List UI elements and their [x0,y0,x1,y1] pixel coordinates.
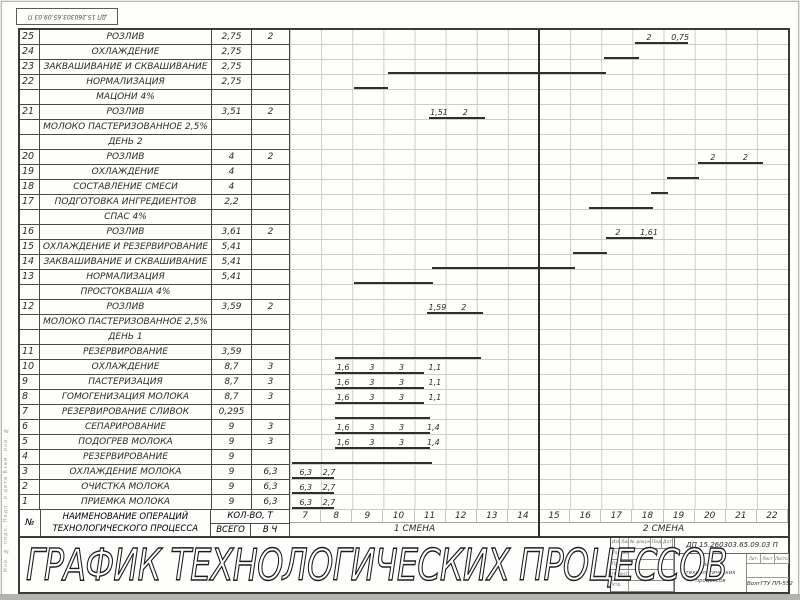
qty-value: 5,41 [212,240,252,255]
rate-value [252,120,290,135]
hour-tick: 19 [664,510,695,522]
bar-label: 1,6 [337,364,350,372]
row-number: 24 [20,45,40,60]
rate-value: 3 [252,375,290,390]
operation-name: СОСТАВЛЕНИЕ СМЕСИ [40,180,212,195]
bar-label: 3 [369,379,374,387]
qty-value: 4 [212,165,252,180]
gantt-bar [573,252,607,254]
row-number: 15 [20,240,40,255]
operation-name: ПАСТЕРИЗАЦИЯ [40,375,212,390]
qty-value: 9 [212,420,252,435]
table-row: СПАС 4% [20,210,788,225]
hour-tick: 11 [415,510,446,522]
qty-value: 5,41 [212,255,252,270]
row-number: 23 [20,60,40,75]
table-row: 3ОХЛАЖДЕНИЕ МОЛОКА96,36,32,7 [20,465,788,480]
rate-value [252,90,290,105]
row-number: 21 [20,105,40,120]
qty-value: 2,75 [212,75,252,90]
table-row: 8ГОМОГЕНИЗАЦИЯ МОЛОКА8,731,6331,1 [20,390,788,405]
table-row: 10ОХЛАЖДЕНИЕ8,731,6331,1 [20,360,788,375]
bar-label: 1,6 [337,379,350,387]
operation-name: ДЕНЬ 1 [40,330,212,345]
qty-value: 2,75 [212,30,252,45]
table-row: 25РОЗЛИВ2,75220,75 [20,30,788,45]
bar-label: 3 [399,394,404,402]
table-row: 14ЗАКВАШИВАНИЕ И СКВАШИВАНИЕ5,41 [20,255,788,270]
bar-label: 2,7 [323,469,336,477]
gantt-bar [354,282,433,284]
operation-name: РЕЗЕРВИРОВАНИЕ [40,345,212,360]
table-row: 1ПРИЕМКА МОЛОКА96,36,32,7 [20,495,788,510]
gantt-bar [292,492,334,494]
organization: ВолгГТУ ПП-552 [747,578,789,592]
operation-name: ОХЛАЖДЕНИЕ [40,360,212,375]
table-row: 2ОЧИСТКА МОЛОКА96,36,32,7 [20,480,788,495]
row-number [20,135,40,150]
operation-name: РОЗЛИВ [40,300,212,315]
qty-value: 9 [212,435,252,450]
bottom-zone: ГРАФИК ТЕХНОЛОГИЧЕСКИХ ПРОЦЕССОВ Изм.Лис… [20,538,788,592]
row-number [20,120,40,135]
row-number: 8 [20,390,40,405]
bar-label: 3 [399,364,404,372]
qty-value: 9 [212,480,252,495]
table-row: 16РОЗЛИВ3,61221,61 [20,225,788,240]
bar-label: 3 [369,394,374,402]
rate-value [252,135,290,150]
operation-name: НОРМАЛИЗАЦИЯ [40,270,212,285]
drawing-title-text: ГРАФИК ТЕХНОЛОГИЧЕСКИХ ПРОЦЕССОВ [26,540,727,591]
bar-label: 0,75 [671,34,689,42]
operation-name: ПОДГОТОВКА ИНГРЕДИЕНТОВ [40,195,212,210]
row-number: 3 [20,465,40,480]
table-row: 4РЕЗЕРВИРОВАНИЕ9 [20,450,788,465]
qty-value: 4 [212,180,252,195]
gantt-bar [651,192,668,194]
qty-value [212,285,252,300]
operation-name: РОЗЛИВ [40,105,212,120]
row-number: 11 [20,345,40,360]
operation-name: МОЛОКО ПАСТЕРИЗОВАННОЕ 2,5% [40,120,212,135]
table-row: ПРОСТОКВАША 4% [20,285,788,300]
qty-value [212,135,252,150]
bar-label: 6,3 [299,469,312,477]
gantt-bar [604,57,638,59]
bar-label: 2 [646,34,651,42]
row-number: 25 [20,30,40,45]
operation-name: ОХЛАЖДЕНИЕ [40,165,212,180]
operation-name: СПАС 4% [40,210,212,225]
gantt-bar [335,372,424,374]
row-number: 14 [20,255,40,270]
row-number: 17 [20,195,40,210]
hour-tick: 17 [601,510,632,522]
gantt-bar [635,42,688,44]
gantt-bar [335,432,430,434]
qty-value: 3,51 [212,105,252,120]
gantt-bar [429,117,485,119]
bar-label: 1,4 [427,439,440,447]
header-qty-total: ВСЕГО [211,524,251,537]
gantt-bar [335,447,430,449]
row-number [20,210,40,225]
rate-value: 3 [252,420,290,435]
operation-name: ПОДОГРЕВ МОЛОКА [40,435,212,450]
qty-value: 3,59 [212,300,252,315]
row-number: 5 [20,435,40,450]
qty-value [212,90,252,105]
hour-tick: 9 [352,510,383,522]
bar-label: 2,7 [323,484,336,492]
gantt-bar [335,387,424,389]
table-row: 21РОЗЛИВ3,5121,512 [20,105,788,120]
row-number: 19 [20,165,40,180]
table-row: 22НОРМАЛИЗАЦИЯ2,75 [20,75,788,90]
rate-value [252,75,290,90]
rate-value: 2 [252,105,290,120]
lit-list-listov-header: Лит.ЛистЛистов [747,554,789,564]
qty-value: 9 [212,450,252,465]
table-row: 23ЗАКВАШИВАНИЕ И СКВАШИВАНИЕ2,75 [20,60,788,75]
rate-value [252,330,290,345]
bar-label: 3 [399,424,404,432]
gantt-bar [427,312,483,314]
screen-bottom-strip [0,594,800,600]
rate-value: 2 [252,150,290,165]
table-row: 19ОХЛАЖДЕНИЕ4 [20,165,788,180]
rate-value: 2 [252,30,290,45]
row-number: 20 [20,150,40,165]
qty-value: 2,2 [212,195,252,210]
rate-value [252,315,290,330]
rate-value: 3 [252,360,290,375]
lit-cells [747,564,789,578]
bar-label: 1,6 [337,394,350,402]
bar-label: 3 [369,424,374,432]
gantt-rows: 25РОЗЛИВ2,75220,7524ОХЛАЖДЕНИЕ2,7523ЗАКВ… [20,30,788,510]
operation-name: ОХЛАЖДЕНИЕ И РЕЗЕРВИРОВАНИЕ [40,240,212,255]
qty-value: 0,295 [212,405,252,420]
qty-value: 2,75 [212,45,252,60]
gantt-bar [354,87,388,89]
corner-doc-number-stamp: ДП 15.260303.65.09.03 П [16,8,118,25]
hour-tick: 12 [446,510,477,522]
rate-value [252,345,290,360]
operation-name: РОЗЛИВ [40,225,212,240]
header-name-line1: НАИМЕНОВАНИЕ ОПЕРАЦИЙ [41,511,210,523]
table-row: МОЛОКО ПАСТЕРИЗОВАННОЕ 2,5% [20,120,788,135]
operation-name: ПРОСТОКВАША 4% [40,285,212,300]
operation-name: ДЕНЬ 2 [40,135,212,150]
table-row: 5ПОДОГРЕВ МОЛОКА931,6331,4 [20,435,788,450]
bar-label: 2,7 [323,499,336,507]
table-row: 20РОЗЛИВ4222 [20,150,788,165]
operation-name: ПРИЕМКА МОЛОКА [40,495,212,510]
table-row: 12РОЗЛИВ3,5921,592 [20,300,788,315]
header-name-col: НАИМЕНОВАНИЕ ОПЕРАЦИЙ ТЕХНОЛОГИЧЕСКОГО П… [41,510,211,536]
rate-value [252,195,290,210]
gantt-bar [292,462,432,464]
row-number: 1 [20,495,40,510]
table-row: 24ОХЛАЖДЕНИЕ2,75 [20,45,788,60]
table-row: 18СОСТАВЛЕНИЕ СМЕСИ4 [20,180,788,195]
gantt-bar [388,72,606,74]
rate-value [252,270,290,285]
rate-value [252,255,290,270]
rate-value [252,450,290,465]
row-number: 22 [20,75,40,90]
row-number: 13 [20,270,40,285]
qty-value: 8,7 [212,375,252,390]
gantt-bar [335,357,481,359]
bar-label: 3 [369,364,374,372]
qty-value: 4 [212,150,252,165]
qty-value [212,120,252,135]
mini-header-cell: Лит. [747,554,761,563]
qty-value [212,315,252,330]
hour-tick: 10 [383,510,414,522]
bar-label: 1,1 [429,364,442,372]
bar-label: 6,3 [299,499,312,507]
operation-name: РОЗЛИВ [40,150,212,165]
bar-label: 2 [615,229,620,237]
header-number-col: № [20,510,41,536]
bar-label: 3 [399,439,404,447]
qty-value: 9 [212,495,252,510]
rate-value: 2 [252,225,290,240]
table-row: МАЦОНИ 4% [20,90,788,105]
bar-label: 3 [399,379,404,387]
bar-label: 1,1 [429,379,442,387]
header-rate-per-hour: В Ч [251,524,289,537]
operation-name: РОЗЛИВ [40,30,212,45]
operation-name: ОХЛАЖДЕНИЕ МОЛОКА [40,465,212,480]
bar-label: 1,59 [429,304,447,312]
shift-divider-line [538,30,540,538]
rate-value [252,165,290,180]
table-row: ДЕНЬ 2 [20,135,788,150]
operation-name: ГОМОГЕНИЗАЦИЯ МОЛОКА [40,390,212,405]
margin-stamp-text: Инв. № подл. Подп. и дата Взам. инв. № [3,332,11,572]
operation-name: НОРМАЛИЗАЦИЯ [40,75,212,90]
mini-header-cell: Лист [761,554,775,563]
qty-value: 9 [212,465,252,480]
gantt-bar [335,402,424,404]
hour-tick: 15 [539,510,570,522]
table-header: № НАИМЕНОВАНИЕ ОПЕРАЦИЙ ТЕХНОЛОГИЧЕСКОГО… [20,510,788,538]
row-number: 12 [20,300,40,315]
hour-tick: 20 [695,510,726,522]
qty-value: 3,61 [212,225,252,240]
row-number: 4 [20,450,40,465]
drawing-frame: 25РОЗЛИВ2,75220,7524ОХЛАЖДЕНИЕ2,7523ЗАКВ… [18,28,790,594]
qty-value: 8,7 [212,360,252,375]
bar-label: 3 [369,439,374,447]
gantt-bar [667,177,700,179]
bar-label: 1,51 [430,109,448,117]
table-row: 9ПАСТЕРИЗАЦИЯ8,731,6331,1 [20,375,788,390]
bar-label: 1,6 [337,424,350,432]
rate-value: 3 [252,390,290,405]
hour-tick: 22 [757,510,788,522]
hour-tick: 7 [290,510,321,522]
qty-value [212,210,252,225]
hour-tick: 14 [508,510,539,522]
gantt-bar [432,267,575,269]
bar-label: 2 [710,154,715,162]
row-number [20,330,40,345]
qty-value: 5,41 [212,270,252,285]
row-number [20,315,40,330]
hour-tick: 13 [477,510,508,522]
rate-value [252,240,290,255]
rate-value: 2 [252,300,290,315]
corner-doc-number-text: ДП 15.260303.65.09.03 П [28,13,107,20]
row-number [20,90,40,105]
table-row: ДЕНЬ 1 [20,330,788,345]
row-number: 10 [20,360,40,375]
table-row: 11РЕЗЕРВИРОВАНИЕ3,59 [20,345,788,360]
shift-1-label: 1 СМЕНА [290,523,539,536]
row-number: 2 [20,480,40,495]
rate-value [252,210,290,225]
table-row: 15ОХЛАЖДЕНИЕ И РЕЗЕРВИРОВАНИЕ5,41 [20,240,788,255]
rate-value: 6,3 [252,495,290,510]
operation-name: РЕЗЕРВИРОВАНИЕ [40,450,212,465]
table-row: 7РЕЗЕРВИРОВАНИЕ СЛИВОК0,295 [20,405,788,420]
rate-value [252,405,290,420]
qty-value: 2,75 [212,60,252,75]
row-number: 6 [20,420,40,435]
mini-header-cell: Листов [775,554,789,563]
bar-label: 1,4 [427,424,440,432]
qty-value [212,330,252,345]
drawing-sheet: ДП 15.260303.65.09.03 П Инв. № подл. Под… [1,1,799,595]
gantt-bar [606,237,653,239]
drawing-title: ГРАФИК ТЕХНОЛОГИЧЕСКИХ ПРОЦЕССОВ [20,538,610,592]
gantt-bar [589,207,653,209]
table-row: 17ПОДГОТОВКА ИНГРЕДИЕНТОВ2,2 [20,195,788,210]
rate-value [252,285,290,300]
header-name-line2: ТЕХНОЛОГИЧЕСКОГО ПРОЦЕССА [41,523,210,535]
hour-tick: 21 [726,510,757,522]
qty-value: 3,59 [212,345,252,360]
row-number: 18 [20,180,40,195]
row-number [20,285,40,300]
rate-value [252,60,290,75]
rate-value: 6,3 [252,480,290,495]
operation-name: ОХЛАЖДЕНИЕ [40,45,212,60]
gantt-table: 25РОЗЛИВ2,75220,7524ОХЛАЖДЕНИЕ2,7523ЗАКВ… [20,30,788,538]
hour-tick: 8 [321,510,352,522]
bar-label: 1,1 [429,394,442,402]
row-number: 9 [20,375,40,390]
operation-name: МОЛОКО ПАСТЕРИЗОВАННОЕ 2,5% [40,315,212,330]
gantt-bar [335,417,430,419]
rate-value: 6,3 [252,465,290,480]
table-row: 13НОРМАЛИЗАЦИЯ5,41 [20,270,788,285]
bar-label: 1,61 [640,229,658,237]
rate-value [252,180,290,195]
table-row: МОЛОКО ПАСТЕРИЗОВАННОЕ 2,5% [20,315,788,330]
operation-name: ЗАКВАШИВАНИЕ И СКВАШИВАНИЕ [40,255,212,270]
hour-tick: 18 [632,510,663,522]
bar-label: 2 [463,109,468,117]
operation-name: СЕПАРИРОВАНИЕ [40,420,212,435]
rate-value: 3 [252,435,290,450]
row-number: 16 [20,225,40,240]
operation-name: МАЦОНИ 4% [40,90,212,105]
rate-value [252,45,290,60]
gantt-bar [292,507,334,509]
bar-label: 6,3 [299,484,312,492]
gantt-bar [292,477,334,479]
bar-label: 2 [461,304,466,312]
shift-2-label: 2 СМЕНА [539,523,788,536]
table-row: 6СЕПАРИРОВАНИЕ931,6331,4 [20,420,788,435]
operation-name: РЕЗЕРВИРОВАНИЕ СЛИВОК [40,405,212,420]
header-qty-top: КОЛ-ВО, Т [211,510,289,524]
hour-tick: 16 [570,510,601,522]
qty-value: 8,7 [212,390,252,405]
gantt-bar [698,162,763,164]
bar-label: 2 [743,154,748,162]
row-number: 7 [20,405,40,420]
header-qty-col: КОЛ-ВО, Т ВСЕГО В Ч [211,510,290,536]
bar-label: 1,6 [337,439,350,447]
operation-name: ЗАКВАШИВАНИЕ И СКВАШИВАНИЕ [40,60,212,75]
operation-name: ОЧИСТКА МОЛОКА [40,480,212,495]
